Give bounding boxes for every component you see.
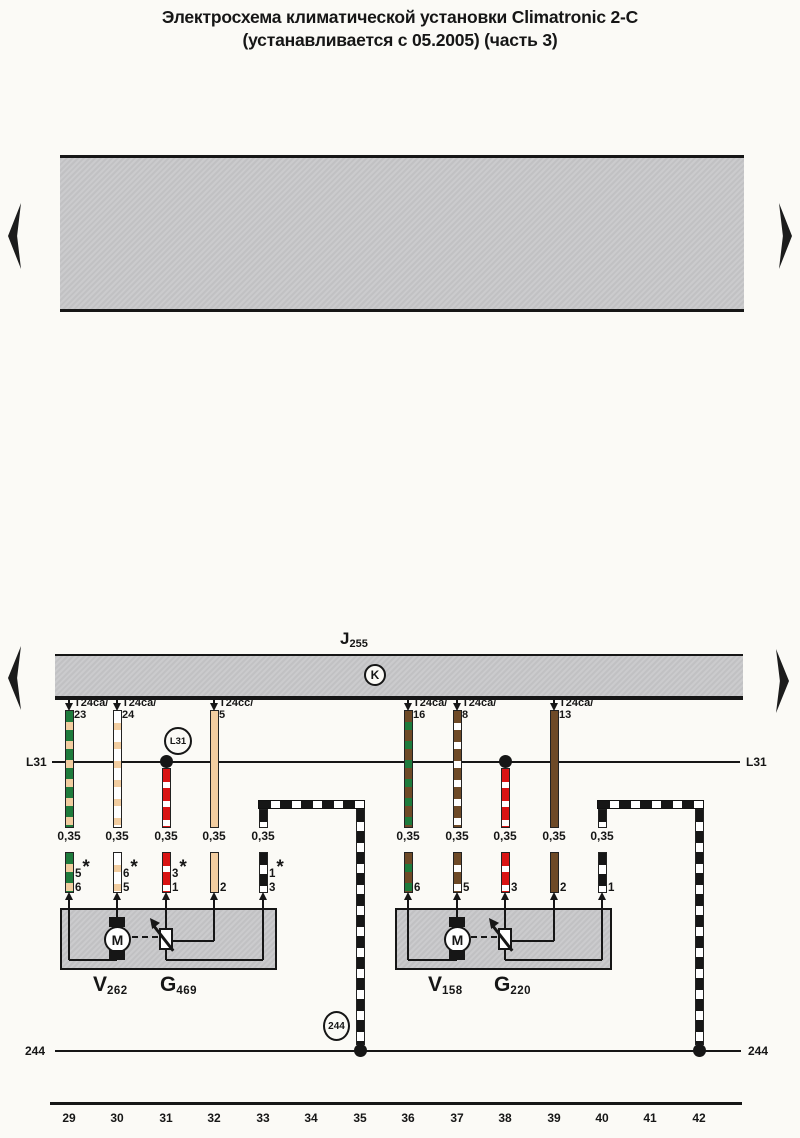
wiring-line <box>166 959 263 961</box>
wire-gauge-label: 0,35 <box>485 829 525 843</box>
ground-loop-bar-right <box>597 800 704 809</box>
junction-dot-244 <box>354 1044 367 1057</box>
pin-number: 2 <box>220 882 226 894</box>
continues-left-icon-mid <box>8 646 21 710</box>
wire-stem <box>68 899 70 908</box>
asterisk-mark: * <box>179 857 186 878</box>
arrow-down-icon <box>210 703 218 711</box>
wire-stem <box>601 899 603 908</box>
wiring-line <box>262 908 264 960</box>
connector-pin: 5 <box>219 709 253 721</box>
rail-l31-label-right: L31 <box>746 755 767 769</box>
component-label-v158: V158 <box>428 973 463 997</box>
pin-number: 1 <box>608 882 614 894</box>
wire-w37 <box>453 710 462 828</box>
arrow-down-icon <box>113 703 121 711</box>
wire-w39 <box>550 710 559 828</box>
wire-stem <box>553 899 555 908</box>
wire-gauge-label: 0,35 <box>49 829 89 843</box>
wire-w30 <box>113 852 122 893</box>
pin-label: 1* <box>269 868 283 881</box>
pin-number: 3 <box>172 868 178 880</box>
track-number: 35 <box>345 1111 375 1125</box>
bus-number: 255 <box>349 638 367 650</box>
pin-number: 6 <box>123 868 129 880</box>
wiring-line <box>69 959 117 961</box>
wire-w29 <box>65 852 74 893</box>
pin-label: 2 <box>560 882 566 895</box>
wire-w38 <box>501 768 510 828</box>
asterisk-mark: * <box>130 857 137 878</box>
track-number: 30 <box>102 1111 132 1125</box>
track-scale-line <box>50 1102 742 1105</box>
wire-w31 <box>162 852 171 893</box>
pin-number: 1 <box>172 882 178 894</box>
title-line1: Электросхема климатической установки Cli… <box>0 6 800 29</box>
wire-w31 <box>162 768 171 828</box>
wire-w37 <box>453 852 462 893</box>
arrow-down-icon <box>550 703 558 711</box>
schematic-page: Электросхема климатической установки Cli… <box>0 0 800 1138</box>
pin-label: 5 <box>463 882 469 895</box>
bus-designation: J255 <box>340 629 368 649</box>
continuation-strip-top <box>60 155 744 312</box>
connector-pin: 23 <box>74 709 108 721</box>
track-number: 31 <box>151 1111 181 1125</box>
continues-right-icon-mid <box>776 649 789 713</box>
wiring-line <box>512 940 554 942</box>
wire-gauge-label: 0,35 <box>388 829 428 843</box>
ground-loop-bar-left <box>258 800 365 809</box>
pin-label: 1 <box>172 882 178 895</box>
wiring-line <box>408 959 457 961</box>
connector-label: T24ca/16 <box>413 697 447 721</box>
wire-w29 <box>65 710 74 828</box>
component-label-g220: G220 <box>494 973 531 997</box>
wire-w42 <box>695 809 704 1045</box>
wiring-line <box>173 940 214 942</box>
pin-number: 2 <box>560 882 566 894</box>
wire-stem <box>213 899 215 908</box>
wiring-line <box>553 908 555 941</box>
bus-hub-circle: K <box>364 664 386 686</box>
connector-pin: 13 <box>559 709 593 721</box>
arrow-down-icon <box>404 703 412 711</box>
rail-l31-label-left: L31 <box>26 755 47 769</box>
pin-label: 2 <box>220 882 226 895</box>
wire-w36 <box>404 710 413 828</box>
connector-pin: 8 <box>462 709 496 721</box>
pin-label: 1 <box>608 882 614 895</box>
junction-dot-l31 <box>160 755 173 768</box>
track-number: 38 <box>490 1111 520 1125</box>
wire-w33 <box>259 852 268 893</box>
wire-w32 <box>210 852 219 893</box>
component-label-g469: G469 <box>160 973 197 997</box>
wire-gauge-label: 0,35 <box>194 829 234 843</box>
connector-label: T24ca/24 <box>122 697 156 721</box>
pin-number: 1 <box>269 868 275 880</box>
component-label-v262: V262 <box>93 973 128 997</box>
connector-name: T24ca/ <box>122 697 156 709</box>
junction-circle-l31: L31 <box>164 727 192 755</box>
pin-label: 6* <box>123 868 137 881</box>
mechanical-link-right <box>471 936 497 938</box>
rail-l31-line <box>52 761 740 763</box>
connector-pin: 24 <box>122 709 156 721</box>
track-number: 37 <box>442 1111 472 1125</box>
wiring-line <box>504 908 506 929</box>
track-number: 41 <box>635 1111 665 1125</box>
wiring-line <box>407 908 409 960</box>
pin-label: 6 <box>75 882 81 895</box>
wire-stem <box>407 899 409 908</box>
wire-gauge-label: 0,35 <box>582 829 622 843</box>
arrow-down-icon <box>453 703 461 711</box>
connector-label: T24cc/5 <box>219 697 253 721</box>
wire-stem <box>165 899 167 908</box>
title-line2: (устанавливается с 05.2005) (часть 3) <box>0 29 800 52</box>
continues-left-icon-top <box>8 203 21 269</box>
track-number: 36 <box>393 1111 423 1125</box>
connector-name: T24ca/ <box>462 697 496 709</box>
wiring-line <box>116 908 118 917</box>
wire-stem <box>504 899 506 908</box>
connector-label: T24ca/23 <box>74 697 108 721</box>
wire-w39 <box>550 852 559 893</box>
wiring-line <box>165 908 167 929</box>
pin-label: 5 <box>123 882 129 895</box>
wire-w38 <box>501 852 510 893</box>
wiring-line <box>213 908 215 941</box>
connector-label: T24ca/8 <box>462 697 496 721</box>
pin-label: 3* <box>172 868 186 881</box>
continues-right-icon-top <box>779 203 792 269</box>
asterisk-mark: * <box>276 857 283 878</box>
mechanical-link-left <box>132 936 158 938</box>
wire-gauge-label: 0,35 <box>146 829 186 843</box>
pin-label: 6 <box>414 882 420 895</box>
track-number: 34 <box>296 1111 326 1125</box>
motor-symbol-v262: M <box>104 926 131 953</box>
page-title: Электросхема климатической установки Cli… <box>0 6 800 52</box>
track-number: 29 <box>54 1111 84 1125</box>
junction-dot-l31 <box>499 755 512 768</box>
track-number: 40 <box>587 1111 617 1125</box>
pin-number: 6 <box>75 882 81 894</box>
connector-name: T24ca/ <box>74 697 108 709</box>
wire-stem <box>456 899 458 908</box>
wire-w36 <box>404 852 413 893</box>
pin-number: 6 <box>414 882 420 894</box>
wire-gauge-label: 0,35 <box>97 829 137 843</box>
pin-number: 5 <box>463 882 469 894</box>
track-number: 39 <box>539 1111 569 1125</box>
wire-stem <box>262 899 264 908</box>
pin-number: 5 <box>123 882 129 894</box>
track-number: 32 <box>199 1111 229 1125</box>
asterisk-mark: * <box>82 857 89 878</box>
wiring-line <box>68 908 70 960</box>
wire-w35 <box>356 809 365 1045</box>
rail-244-line <box>55 1050 741 1052</box>
wire-w32 <box>210 710 219 828</box>
wiring-line <box>456 908 458 917</box>
rail-244-label-right: 244 <box>748 1044 768 1058</box>
control-unit-bus-j255 <box>55 654 743 700</box>
wire-w40 <box>598 809 607 828</box>
pin-number: 3 <box>269 882 275 894</box>
wire-w40 <box>598 852 607 893</box>
connector-name: T24ca/ <box>413 697 447 709</box>
pin-label: 3 <box>511 882 517 895</box>
pin-number: 3 <box>511 882 517 894</box>
track-number: 42 <box>684 1111 714 1125</box>
motor-symbol-v158: M <box>444 926 471 953</box>
junction-circle-244: 244 <box>323 1011 350 1041</box>
connector-label: T24ca/13 <box>559 697 593 721</box>
wire-gauge-label: 0,35 <box>534 829 574 843</box>
wire-w33 <box>259 809 268 828</box>
wire-stem <box>116 899 118 908</box>
connector-name: T24ca/ <box>559 697 593 709</box>
pin-label: 5* <box>75 868 89 881</box>
track-number: 33 <box>248 1111 278 1125</box>
arrow-down-icon <box>65 703 73 711</box>
rail-244-label-left: 244 <box>25 1044 45 1058</box>
wire-gauge-label: 0,35 <box>437 829 477 843</box>
wiring-line <box>601 908 603 960</box>
connector-name: T24cc/ <box>219 697 253 709</box>
pin-number: 5 <box>75 868 81 880</box>
junction-dot-244 <box>693 1044 706 1057</box>
wire-gauge-label: 0,35 <box>243 829 283 843</box>
wiring-line <box>505 959 602 961</box>
pin-label: 3 <box>269 882 275 895</box>
connector-pin: 16 <box>413 709 447 721</box>
wire-w30 <box>113 710 122 828</box>
